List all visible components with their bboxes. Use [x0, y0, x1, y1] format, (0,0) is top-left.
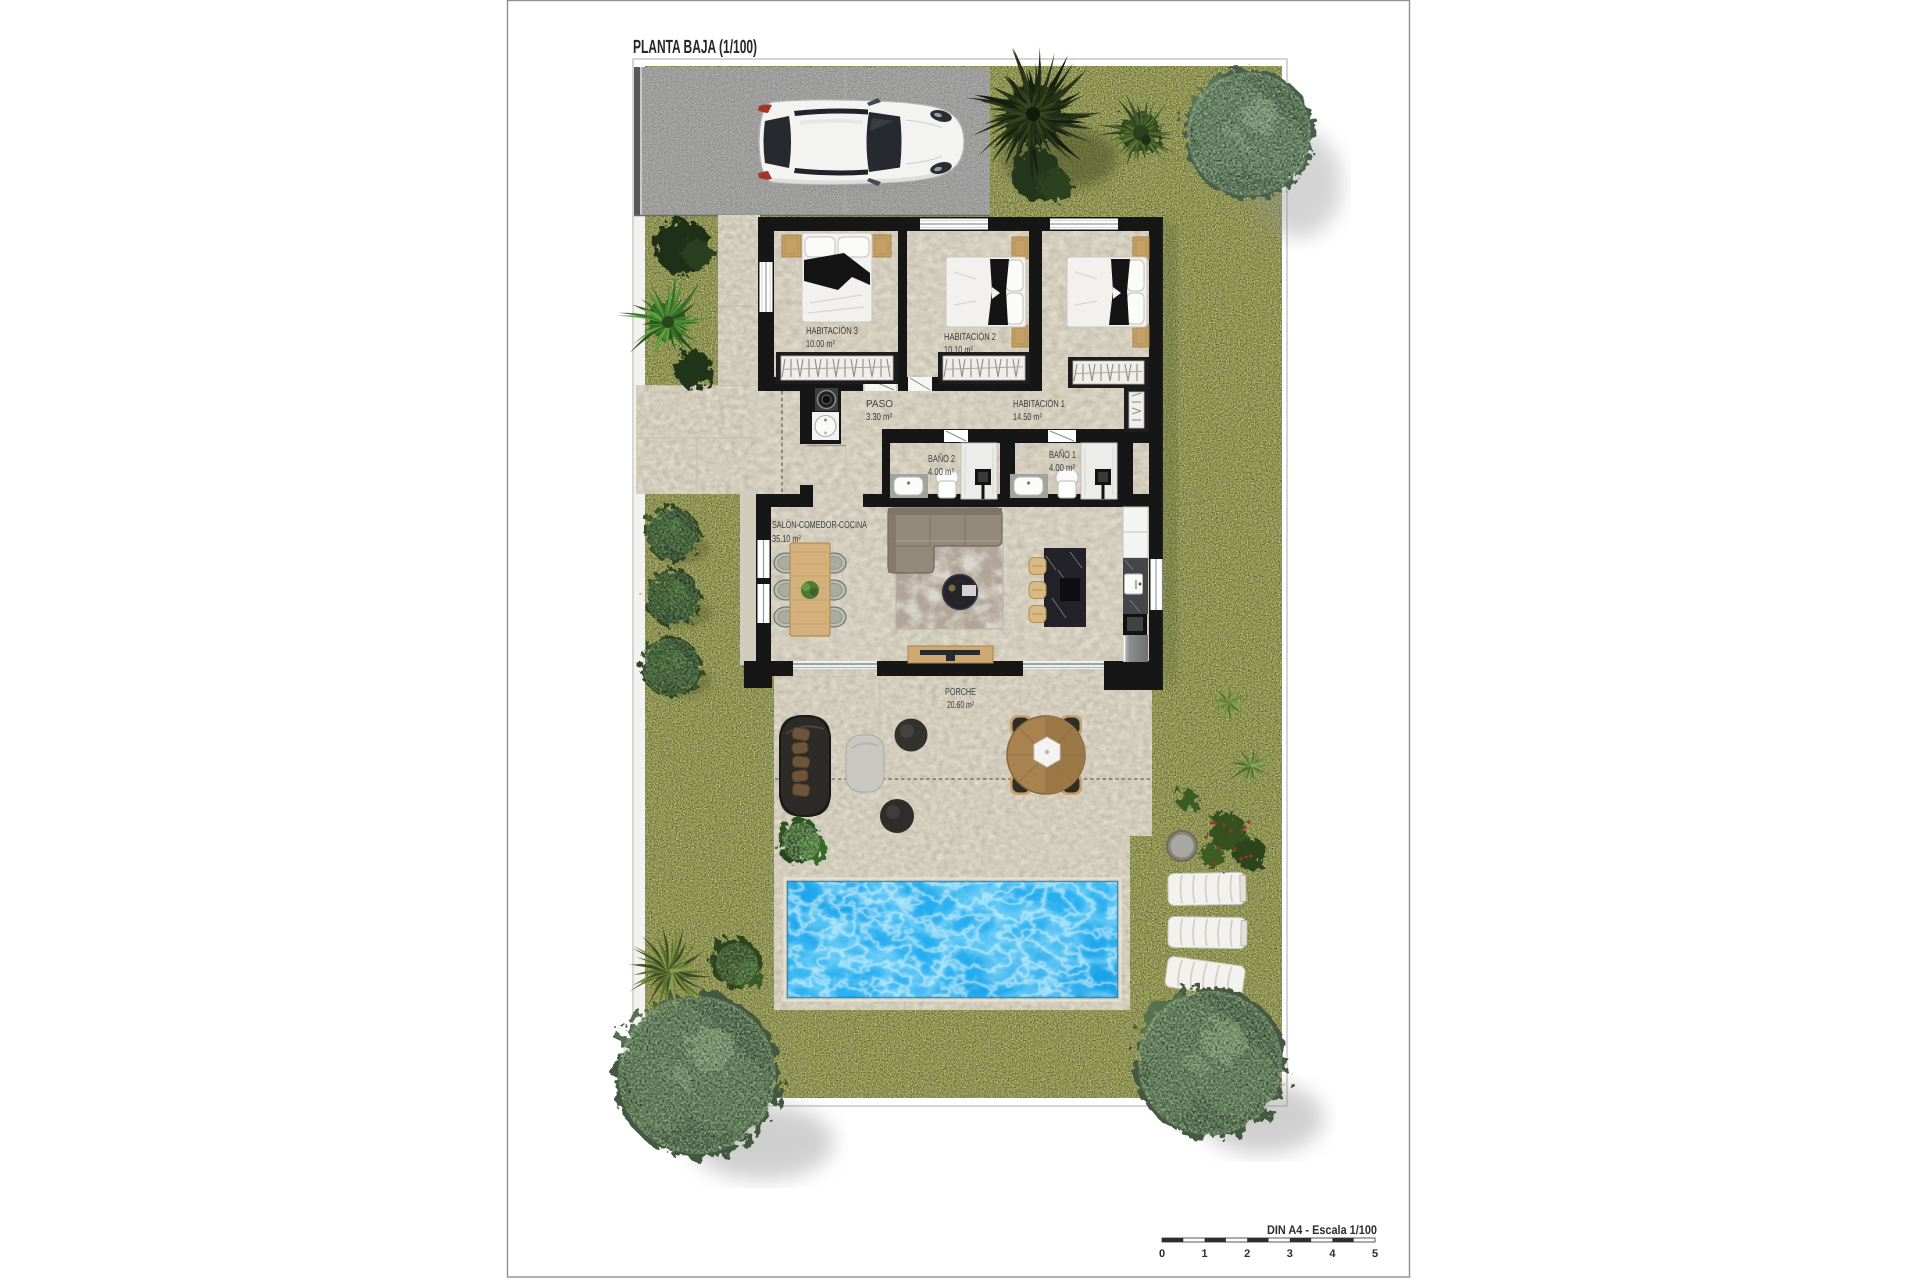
svg-text:10.00 m²: 10.00 m² — [806, 339, 835, 350]
svg-text:HABITACIÓN 2: HABITACIÓN 2 — [944, 331, 996, 343]
svg-text:PASO: PASO — [866, 399, 893, 410]
svg-text:1: 1 — [1202, 1248, 1208, 1260]
svg-text:SALÓN-COMEDOR-COCINA: SALÓN-COMEDOR-COCINA — [772, 519, 867, 531]
svg-text:BAÑO 2: BAÑO 2 — [928, 453, 955, 465]
svg-text:0: 0 — [1159, 1248, 1165, 1260]
svg-text:4: 4 — [1329, 1248, 1336, 1260]
svg-text:BAÑO 1: BAÑO 1 — [1049, 449, 1076, 461]
svg-text:4.00 m²: 4.00 m² — [1049, 463, 1076, 474]
svg-text:3: 3 — [1287, 1248, 1293, 1260]
svg-text:4.00 m²: 4.00 m² — [928, 467, 955, 478]
svg-text:PORCHE: PORCHE — [945, 687, 976, 698]
svg-text:HABITACIÓN 3: HABITACIÓN 3 — [806, 325, 858, 337]
svg-text:3.30 m²: 3.30 m² — [866, 412, 893, 423]
svg-text:20.60 m²: 20.60 m² — [947, 700, 974, 711]
svg-text:14.50 m²: 14.50 m² — [1013, 412, 1042, 423]
svg-text:2: 2 — [1244, 1248, 1250, 1260]
svg-text:DIN A4 - Escala 1/100: DIN A4 - Escala 1/100 — [1267, 1223, 1377, 1237]
svg-text:PLANTA BAJA (1/100): PLANTA BAJA (1/100) — [633, 37, 757, 58]
svg-text:HABITACIÓN 1: HABITACIÓN 1 — [1013, 398, 1065, 410]
svg-text:5: 5 — [1372, 1248, 1378, 1260]
